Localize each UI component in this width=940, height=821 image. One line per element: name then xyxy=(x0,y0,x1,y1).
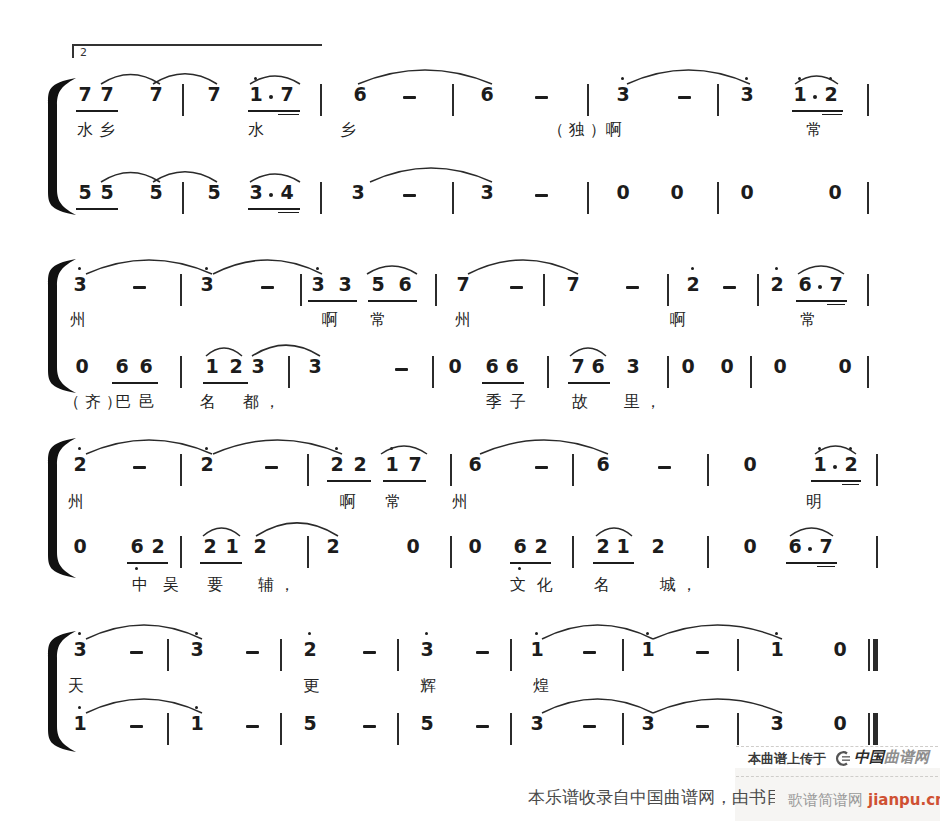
note-digit: 6 xyxy=(114,357,130,376)
brand-light: 曲谱网 xyxy=(884,748,929,766)
note-digit: 2 xyxy=(823,85,839,104)
lyric-text: 州 xyxy=(68,492,89,513)
barline xyxy=(750,356,752,388)
note-digit: 0 xyxy=(742,537,758,556)
beam-line xyxy=(127,562,168,564)
note-digit: 6 xyxy=(504,357,520,376)
barline xyxy=(543,274,545,306)
volta-bracket-line xyxy=(72,44,322,46)
lyric-text: 啊 xyxy=(670,310,691,331)
note-digit: 0 xyxy=(719,357,735,376)
sustain-dash xyxy=(133,466,146,469)
barline xyxy=(622,713,624,745)
lyric-text: 天 xyxy=(68,676,89,697)
barline xyxy=(667,274,669,306)
note-digit: 4 xyxy=(279,183,295,202)
lyric-text: 更 xyxy=(303,676,324,697)
lyric-text: 啊 xyxy=(340,492,361,513)
sustain-dash xyxy=(535,466,548,469)
slur-arc xyxy=(542,625,653,639)
barline xyxy=(587,84,589,116)
slur-arc xyxy=(86,260,212,274)
beam-line xyxy=(368,300,417,302)
note-digit: 1 xyxy=(72,714,88,733)
note-digit: 3 xyxy=(189,640,205,659)
divider-dashed-bottom xyxy=(736,776,938,777)
beam-line xyxy=(203,382,248,384)
note-digit: 5 xyxy=(148,183,164,202)
sustain-dash xyxy=(696,651,709,654)
note-digit: 1 xyxy=(640,640,656,659)
barline xyxy=(307,454,309,486)
note-digit: 0 xyxy=(447,357,463,376)
note-digit: 2 xyxy=(150,537,166,556)
barline xyxy=(510,713,512,745)
octave-dot-high xyxy=(78,632,81,635)
note-digit: 0 xyxy=(837,357,853,376)
note-digit: 7 xyxy=(407,455,423,474)
note-digit: 6 xyxy=(352,85,368,104)
note-digit: 2 xyxy=(202,537,218,556)
note-digit: 6 xyxy=(590,357,606,376)
note-digit: 3 xyxy=(337,275,353,294)
barline xyxy=(180,274,182,306)
octave-dot-high xyxy=(78,267,81,270)
note-digit: 7 xyxy=(570,357,586,376)
barline xyxy=(737,713,739,745)
lyric-text: 乡 xyxy=(340,120,361,141)
barline xyxy=(717,182,719,214)
barline xyxy=(320,182,322,214)
octave-dot-high xyxy=(254,77,257,80)
augmentation-dot xyxy=(269,95,273,99)
sustain-dash xyxy=(583,725,596,728)
lyric-text: 常 xyxy=(385,492,406,513)
lyric-text: 啊 xyxy=(322,310,343,331)
slur-arc xyxy=(213,440,342,454)
barline xyxy=(510,639,512,671)
barline xyxy=(876,454,878,486)
note-digit: 5 xyxy=(370,275,386,294)
beam-line xyxy=(786,562,837,564)
beam-line xyxy=(327,480,371,482)
qupu-brand-name: 中国曲谱网 xyxy=(854,748,929,767)
note-digit: 7 xyxy=(565,275,581,294)
augmentation-dot xyxy=(269,193,273,197)
beam-line xyxy=(568,382,610,384)
note-digit: 2 xyxy=(533,537,549,556)
barline xyxy=(450,536,452,568)
barline xyxy=(397,713,399,745)
note-digit: 0 xyxy=(680,357,696,376)
barline xyxy=(167,639,169,671)
octave-dot-low xyxy=(135,567,138,570)
barline xyxy=(707,454,709,486)
note-digit: 1 xyxy=(384,455,400,474)
lyric-text: 要 xyxy=(207,575,228,596)
note-digit: 1 xyxy=(812,455,828,474)
note-digit: 1 xyxy=(792,85,808,104)
barline xyxy=(280,639,282,671)
sustain-dash xyxy=(265,466,278,469)
beam-line xyxy=(112,382,158,384)
octave-dot-high xyxy=(849,447,852,450)
note-digit: 5 xyxy=(77,183,93,202)
barline xyxy=(547,356,549,388)
sustain-dash xyxy=(678,96,691,99)
beam-line xyxy=(510,562,551,564)
note-digit: 0 xyxy=(405,537,421,556)
note-digit: 7 xyxy=(99,85,115,104)
octave-dot-high xyxy=(646,632,649,635)
note-digit: 1 xyxy=(529,640,545,659)
barline xyxy=(717,84,719,116)
note-digit: 7 xyxy=(455,275,471,294)
sustain-dash xyxy=(535,194,548,197)
sustain-dash xyxy=(510,286,523,289)
octave-dot-high xyxy=(78,706,81,709)
slur-arc xyxy=(86,699,202,713)
octave-dot-high xyxy=(205,447,208,450)
slur-arc xyxy=(213,260,322,274)
final-barline-thick xyxy=(873,639,878,671)
note-digit: 6 xyxy=(512,537,528,556)
lyric-text: 城， xyxy=(660,575,702,596)
sustain-dash xyxy=(246,651,259,654)
lyric-text: 邑 xyxy=(139,392,160,413)
barline xyxy=(180,356,182,388)
beam-line xyxy=(308,300,357,302)
octave-dot-high xyxy=(195,632,198,635)
note-digit: 6 xyxy=(138,357,154,376)
barline xyxy=(307,536,309,568)
note-digit: 5 xyxy=(419,714,435,733)
beam-line-2 xyxy=(817,566,835,568)
note-digit: 3 xyxy=(248,183,264,202)
barline xyxy=(867,356,869,388)
note-digit: 0 xyxy=(832,714,848,733)
note-digit: 2 xyxy=(352,455,368,474)
barline xyxy=(867,274,869,306)
note-digit: 3 xyxy=(769,714,785,733)
beam-line xyxy=(792,110,843,112)
sustain-dash xyxy=(696,725,709,728)
lyric-text: 名 xyxy=(200,392,221,413)
slur-arc xyxy=(653,699,782,713)
lyric-text: 乡 xyxy=(99,120,120,141)
beam-line xyxy=(482,382,524,384)
barline xyxy=(182,84,184,116)
sustain-dash xyxy=(395,368,408,371)
note-digit: 6 xyxy=(595,455,611,474)
note-digit: 2 xyxy=(769,275,785,294)
note-digit: 0 xyxy=(74,357,90,376)
sustain-dash xyxy=(363,725,376,728)
lyric-text: 里， xyxy=(624,392,666,413)
note-digit: 3 xyxy=(739,85,755,104)
slur-arc xyxy=(542,699,653,713)
octave-dot-high xyxy=(308,632,311,635)
beam-line xyxy=(200,562,242,564)
barline xyxy=(867,84,869,116)
volta-bracket-tick xyxy=(72,44,74,58)
note-digit: 0 xyxy=(467,537,483,556)
octave-dot-low xyxy=(518,567,521,570)
lyric-text: 常 xyxy=(806,120,827,141)
divider-dashed-top xyxy=(736,746,938,747)
barline xyxy=(587,182,589,214)
note-digit: 1 xyxy=(189,714,205,733)
slur-arc xyxy=(86,440,212,454)
note-digit: 1 xyxy=(615,537,631,556)
note-digit: 3 xyxy=(640,714,656,733)
note-digit: 3 xyxy=(529,714,545,733)
octave-dot-high xyxy=(691,267,694,270)
clipped-character: 目 xyxy=(766,786,775,809)
note-digit: 1 xyxy=(204,357,220,376)
sustain-dash xyxy=(133,286,146,289)
note-digit: 3 xyxy=(310,275,326,294)
note-digit: 2 xyxy=(72,455,88,474)
lyric-text: 明 xyxy=(806,492,827,513)
lyric-text: 化 xyxy=(537,575,558,596)
octave-dot-high xyxy=(195,706,198,709)
beam-line xyxy=(796,300,847,302)
sustain-dash xyxy=(363,651,376,654)
barline xyxy=(572,536,574,568)
lyric-text: 季 xyxy=(486,392,507,413)
brand-strong: 中国 xyxy=(854,748,884,766)
octave-dot-high xyxy=(775,267,778,270)
sustain-dash xyxy=(583,651,596,654)
barline xyxy=(707,536,709,568)
sustain-dash xyxy=(476,651,489,654)
sustain-dash xyxy=(246,725,259,728)
note-digit: 3 xyxy=(479,183,495,202)
uploaded-by-label: 本曲谱上传于 xyxy=(748,750,826,768)
octave-dot-high xyxy=(316,267,319,270)
beam-line xyxy=(76,110,118,112)
barline xyxy=(450,454,452,486)
octave-dot-high xyxy=(535,632,538,635)
beam-line xyxy=(76,208,118,210)
note-digit: 0 xyxy=(832,640,848,659)
barline xyxy=(300,274,302,306)
site-domain-link[interactable]: jianpu.cn xyxy=(868,791,940,809)
slur-arc xyxy=(653,625,782,639)
barline xyxy=(452,84,454,116)
note-digit: 7 xyxy=(148,85,164,104)
barline xyxy=(280,713,282,745)
sustain-dash xyxy=(403,194,416,197)
barline xyxy=(622,639,624,671)
note-digit: 3 xyxy=(350,183,366,202)
beam-line xyxy=(248,110,300,112)
final-barline-thin xyxy=(868,639,870,671)
octave-dot-high xyxy=(818,447,821,450)
barline xyxy=(167,713,169,745)
note-digit: 6 xyxy=(479,85,495,104)
barline xyxy=(432,356,434,388)
note-digit: 6 xyxy=(787,537,803,556)
note-digit: 2 xyxy=(595,537,611,556)
slur-arc xyxy=(468,260,578,274)
slur-arc xyxy=(480,440,608,454)
final-barline-thick xyxy=(873,713,878,745)
note-digit: 3 xyxy=(307,357,323,376)
beam-line-2 xyxy=(827,304,845,306)
augmentation-dot xyxy=(818,285,822,289)
slur-arc xyxy=(370,168,492,182)
note-digit: 2 xyxy=(650,537,666,556)
note-digit: 2 xyxy=(199,455,215,474)
augmentation-dot xyxy=(813,95,817,99)
barline xyxy=(876,536,878,568)
lyric-text: 都， xyxy=(243,392,285,413)
note-digit: 5 xyxy=(206,183,222,202)
octave-dot-high xyxy=(621,77,624,80)
barline xyxy=(180,536,182,568)
lyric-text: 辅， xyxy=(258,575,300,596)
sustain-dash xyxy=(130,725,143,728)
note-digit: 3 xyxy=(419,640,435,659)
note-digit: 1 xyxy=(248,85,264,104)
lyric-text: 啊 xyxy=(606,120,627,141)
sustain-dash xyxy=(476,725,489,728)
lyric-text: 州 xyxy=(70,310,91,331)
beam-line xyxy=(811,480,861,482)
barline xyxy=(288,356,290,388)
system-brace xyxy=(48,78,76,215)
slur-arc xyxy=(86,625,202,639)
lyric-text: 常 xyxy=(370,310,391,331)
qupu-logo-icon xyxy=(833,750,851,771)
octave-dot-high xyxy=(798,77,801,80)
octave-dot-high xyxy=(78,447,81,450)
note-digit: 0 xyxy=(772,357,788,376)
note-digit: 0 xyxy=(72,537,88,556)
lyric-text: 文 xyxy=(510,575,531,596)
octave-dot-high xyxy=(335,447,338,450)
note-digit: 0 xyxy=(615,183,631,202)
sustain-dash xyxy=(261,286,274,289)
note-digit: 3 xyxy=(72,275,88,294)
barline xyxy=(182,182,184,214)
octave-dot-high xyxy=(390,447,393,450)
barline xyxy=(452,182,454,214)
note-digit: 6 xyxy=(484,357,500,376)
barline xyxy=(572,454,574,486)
note-digit: 2 xyxy=(329,455,345,474)
sustain-dash xyxy=(535,96,548,99)
barline xyxy=(180,454,182,486)
note-digit: 3 xyxy=(72,640,88,659)
lyric-text: 常 xyxy=(800,310,821,331)
note-digit: 2 xyxy=(252,537,268,556)
octave-dot-high xyxy=(829,77,832,80)
note-digit: 7 xyxy=(206,85,222,104)
barline xyxy=(757,274,759,306)
augmentation-dot xyxy=(833,465,837,469)
lyric-text: 辉 xyxy=(420,676,441,697)
sustain-dash xyxy=(626,286,639,289)
note-digit: 2 xyxy=(843,455,859,474)
lyric-text: 子 xyxy=(510,392,531,413)
sheet-music-page: 2 777717663312555534330000水乡水乡（独）啊常33335… xyxy=(0,0,940,821)
note-digit: 2 xyxy=(325,537,341,556)
lyric-text: 水 xyxy=(248,120,269,141)
slur-arc xyxy=(358,70,492,84)
octave-dot-high xyxy=(205,267,208,270)
beam-line xyxy=(593,562,634,564)
note-digit: 1 xyxy=(769,640,785,659)
slur-arc xyxy=(627,70,750,84)
lyric-text: 巴 xyxy=(115,392,136,413)
note-digit: 0 xyxy=(669,183,685,202)
beam-line-2 xyxy=(842,484,859,486)
barline xyxy=(397,639,399,671)
note-digit: 0 xyxy=(827,183,843,202)
final-barline-thin xyxy=(868,713,870,745)
note-digit: 6 xyxy=(397,275,413,294)
barline xyxy=(320,84,322,116)
barline xyxy=(867,182,869,214)
octave-dot-high xyxy=(425,632,428,635)
note-digit: 7 xyxy=(77,85,93,104)
barline xyxy=(737,639,739,671)
lyric-text: 州 xyxy=(455,310,476,331)
note-digit: 7 xyxy=(279,85,295,104)
lyric-text: 故 xyxy=(572,392,593,413)
beam-line-2 xyxy=(278,114,299,116)
octave-dot-high xyxy=(775,632,778,635)
sustain-dash xyxy=(723,286,736,289)
note-digit: 3 xyxy=(615,85,631,104)
note-digit: 3 xyxy=(625,357,641,376)
barline xyxy=(667,356,669,388)
beam-line-2 xyxy=(822,114,842,116)
note-digit: 6 xyxy=(129,537,145,556)
lyric-text: 煌 xyxy=(533,676,554,697)
sustain-dash xyxy=(130,651,143,654)
note-digit: 2 xyxy=(685,275,701,294)
note-digit: 0 xyxy=(739,183,755,202)
note-digit: 1 xyxy=(224,537,240,556)
note-digit: 3 xyxy=(250,357,266,376)
beam-line-2 xyxy=(278,212,299,214)
note-digit: 5 xyxy=(99,183,115,202)
sustain-dash xyxy=(658,466,671,469)
note-digit: 7 xyxy=(818,537,834,556)
note-digit: 7 xyxy=(828,275,844,294)
augmentation-dot xyxy=(808,547,812,551)
site-name: 歌谱简谱网 xyxy=(788,791,863,810)
beam-line xyxy=(248,208,300,210)
note-digit: 2 xyxy=(302,640,318,659)
sustain-dash xyxy=(403,96,416,99)
volta-number: 2 xyxy=(80,46,87,59)
lyric-text: 名 xyxy=(594,575,615,596)
note-digit: 5 xyxy=(302,714,318,733)
lyric-text: 水 xyxy=(77,120,98,141)
beam-line xyxy=(383,480,426,482)
note-digit: 2 xyxy=(228,357,244,376)
note-digit: 3 xyxy=(199,275,215,294)
barline xyxy=(435,274,437,306)
lyric-text: 吴 xyxy=(163,575,184,596)
lyric-text: 州 xyxy=(452,492,473,513)
note-digit: 6 xyxy=(797,275,813,294)
